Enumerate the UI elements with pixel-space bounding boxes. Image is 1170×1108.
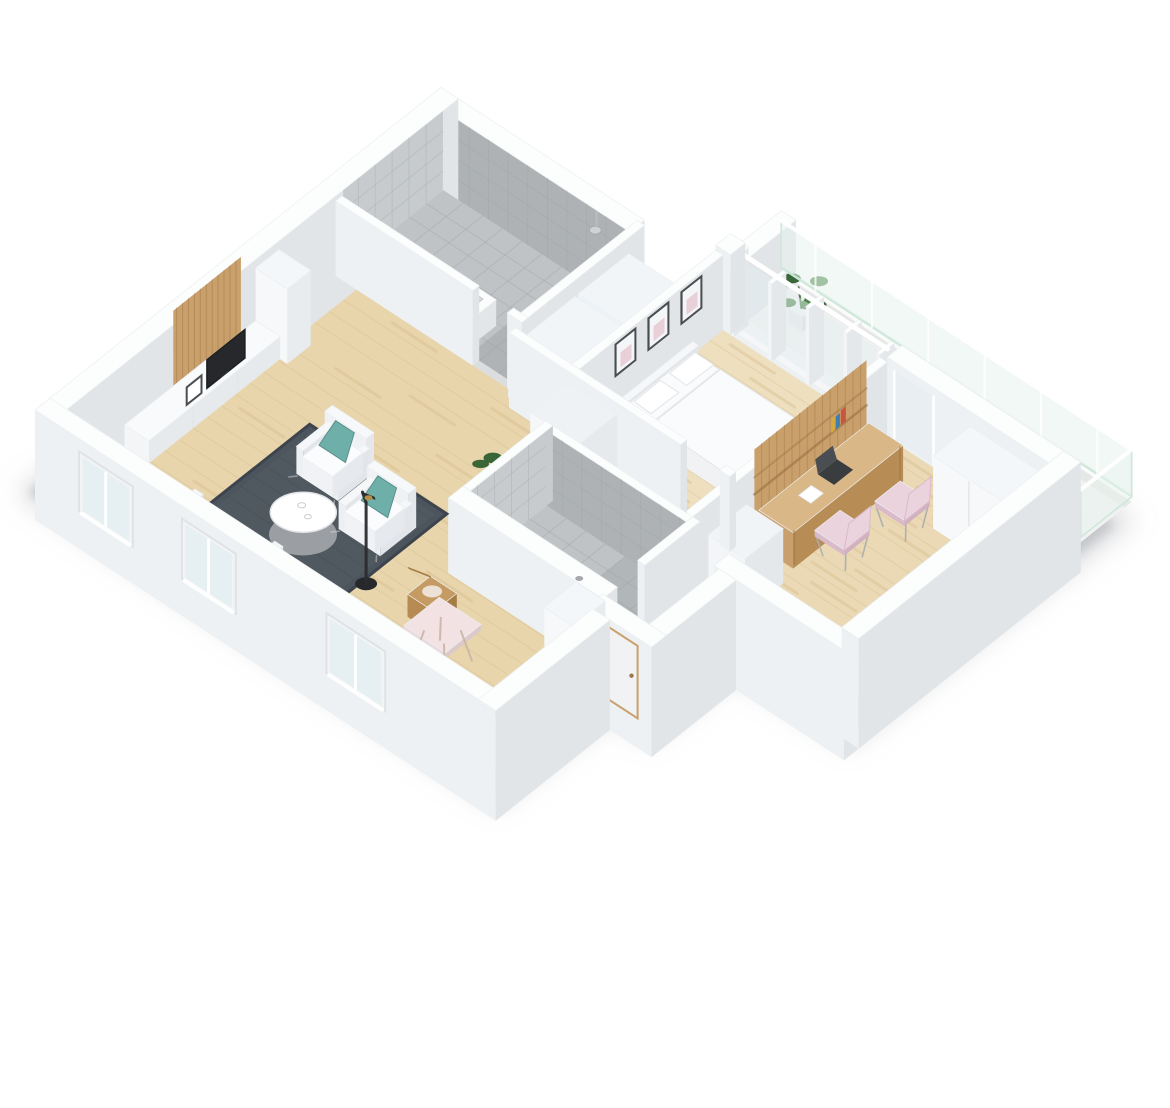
leaf: [472, 460, 489, 468]
seat-cushion: [422, 585, 442, 597]
isometric-scene: [0, 0, 1170, 1108]
door-handle: [629, 674, 633, 678]
cup: [305, 515, 312, 519]
shower-head-disc: [589, 226, 601, 234]
book-spine: [831, 416, 834, 433]
floor-drain: [575, 576, 583, 581]
table-top: [270, 492, 336, 532]
lamp-brass: [365, 495, 373, 500]
bedroom-south-wall-b: [720, 465, 736, 552]
apartment-floorplan-render: [0, 0, 1170, 1108]
cup: [298, 503, 306, 508]
